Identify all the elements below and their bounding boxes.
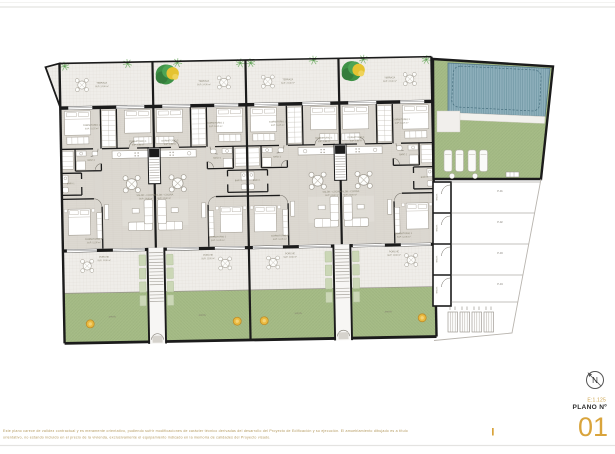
svg-text:SALÓN - COCINA: SALÓN - COCINA [340, 190, 359, 193]
storeroom-label: TRAST. [436, 255, 439, 263]
plano-label: PLANO Nº [573, 404, 608, 411]
svg-text:DORMITORIO 2: DORMITORIO 2 [393, 119, 411, 121]
svg-text:DORMITORIO 3: DORMITORIO 3 [347, 137, 365, 139]
svg-text:SUP: 9,80 m²: SUP: 9,80 m² [132, 143, 145, 146]
svg-text:SUP: 12,35 m²: SUP: 12,35 m² [397, 235, 411, 238]
svg-text:PORCHE: PORCHE [99, 257, 109, 259]
revision-tick [492, 428, 494, 436]
svg-text:TERRAZA: TERRAZA [384, 76, 395, 79]
north-compass-icon: N [587, 372, 604, 389]
svg-text:SUP: 24,60 m²: SUP: 24,60 m² [325, 194, 339, 197]
svg-text:SUP: 12,35 m²: SUP: 12,35 m² [87, 241, 101, 244]
svg-text:SUP: 24,30 m²: SUP: 24,30 m² [383, 80, 397, 83]
svg-text:SUP: 11,50 m²: SUP: 11,50 m² [97, 259, 111, 262]
north-label: N [592, 376, 598, 385]
disclaimer-line-1: Este plano carece de validez contractual… [3, 429, 408, 433]
svg-text:JARDÍN: JARDÍN [294, 312, 302, 315]
svg-text:DORMITORIO 1: DORMITORIO 1 [85, 239, 103, 241]
svg-text:JARDÍN: JARDÍN [384, 310, 392, 313]
bike-racks [448, 307, 494, 333]
storeroom-label: TRAST. [436, 193, 439, 201]
svg-text:BAÑO 1: BAÑO 1 [67, 182, 76, 185]
svg-text:BAÑO 2: BAÑO 2 [213, 156, 222, 159]
svg-text:SUP: 10,25 m²: SUP: 10,25 m² [271, 124, 285, 127]
svg-text:SUP: 9,80 m²: SUP: 9,80 m² [350, 139, 363, 142]
svg-text:SUP: 24,30 m²: SUP: 24,30 m² [197, 83, 211, 86]
parking-bay-lines [452, 182, 541, 302]
title-block: N E:1.125 PLANO Nº 01 [573, 372, 608, 443]
svg-text:SALÓN - COCINA: SALÓN - COCINA [154, 193, 173, 196]
floor-plan-sheet: TERRAZASUP: 24,30 m² DORMITORIO 2SUP: 10… [0, 0, 615, 454]
svg-text:PORCHE: PORCHE [389, 251, 399, 253]
svg-text:DORMITORIO 3: DORMITORIO 3 [315, 137, 333, 139]
parking-area: TRAST. TRAST. TRAST. TRAST. P-01 P-02 P-… [433, 172, 541, 341]
svg-text:BAÑO 1: BAÑO 1 [235, 179, 244, 182]
svg-text:SUP: 24,60 m²: SUP: 24,60 m² [157, 197, 171, 200]
svg-text:SUP: 10,25 m²: SUP: 10,25 m² [395, 121, 409, 124]
svg-text:PORCHE: PORCHE [203, 255, 213, 257]
svg-text:DORMITORIO 3: DORMITORIO 3 [129, 141, 147, 143]
svg-text:SUP: 10,25 m²: SUP: 10,25 m² [209, 125, 223, 128]
svg-text:SUP: 24,60 m²: SUP: 24,60 m² [343, 193, 357, 196]
svg-text:SUP: 12,35 m²: SUP: 12,35 m² [211, 239, 225, 242]
svg-text:SUP: 11,50 m²: SUP: 11,50 m² [201, 257, 215, 260]
svg-text:PORCHE: PORCHE [285, 253, 295, 255]
svg-text:SUP: 24,60 m²: SUP: 24,60 m² [139, 197, 153, 200]
svg-text:TERRAZA: TERRAZA [96, 82, 107, 85]
svg-text:SALÓN - COCINA: SALÓN - COCINA [322, 190, 341, 193]
disclaimer: Este plano carece de validez contractual… [3, 428, 494, 439]
svg-text:TERRAZA: TERRAZA [198, 80, 209, 83]
svg-text:SUP: 10,25 m²: SUP: 10,25 m² [85, 127, 99, 130]
svg-text:BAÑO 1: BAÑO 1 [253, 179, 262, 182]
plano-number: 01 [578, 412, 608, 442]
svg-text:DORMITORIO 2: DORMITORIO 2 [83, 125, 101, 127]
communal-pool-area [433, 59, 553, 179]
svg-text:TERRAZA: TERRAZA [282, 78, 293, 81]
svg-text:BAÑO 2: BAÑO 2 [87, 159, 96, 162]
svg-text:SUP: 9,80 m²: SUP: 9,80 m² [318, 140, 331, 143]
svg-text:SUP: 24,30 m²: SUP: 24,30 m² [281, 82, 295, 85]
svg-text:BAÑO 2: BAÑO 2 [273, 155, 282, 158]
svg-text:DORMITORIO 2: DORMITORIO 2 [207, 122, 225, 124]
storeroom-label: TRAST. [436, 224, 439, 232]
svg-text:DORMITORIO 1: DORMITORIO 1 [395, 233, 413, 235]
svg-text:SUP: 11,50 m²: SUP: 11,50 m² [387, 254, 401, 257]
svg-text:SALÓN - COCINA: SALÓN - COCINA [136, 194, 155, 197]
svg-text:DORMITORIO 1: DORMITORIO 1 [209, 236, 227, 238]
svg-text:DORMITORIO 3: DORMITORIO 3 [161, 140, 179, 142]
svg-text:SUP: 11,50 m²: SUP: 11,50 m² [283, 256, 297, 259]
svg-text:DORMITORIO 2: DORMITORIO 2 [269, 121, 287, 123]
parking-space-label: P-04 [497, 282, 503, 286]
svg-text:JARDÍN: JARDÍN [108, 315, 116, 318]
svg-text:JARDÍN: JARDÍN [198, 314, 206, 317]
residential-block: TERRAZASUP: 24,30 m² DORMITORIO 2SUP: 10… [45, 54, 436, 346]
svg-text:BAÑO 1: BAÑO 1 [421, 176, 430, 179]
svg-text:DORMITORIO 1: DORMITORIO 1 [271, 235, 289, 237]
svg-text:SUP: 9,80 m²: SUP: 9,80 m² [164, 143, 177, 146]
disclaimer-line-2: orientativo, no estando incluido en el p… [3, 435, 271, 439]
svg-text:SUP: 24,30 m²: SUP: 24,30 m² [95, 85, 109, 88]
pool [448, 63, 550, 117]
svg-text:SUP: 12,35 m²: SUP: 12,35 m² [273, 238, 287, 241]
parking-space-label: P-01 [497, 189, 503, 193]
parking-space-label: P-02 [497, 220, 503, 224]
parking-space-label: P-03 [497, 251, 503, 255]
svg-text:BAÑO 2: BAÑO 2 [399, 153, 408, 156]
storeroom-label: TRAST. [436, 286, 439, 294]
scale-label: E:1.125 [587, 398, 606, 404]
